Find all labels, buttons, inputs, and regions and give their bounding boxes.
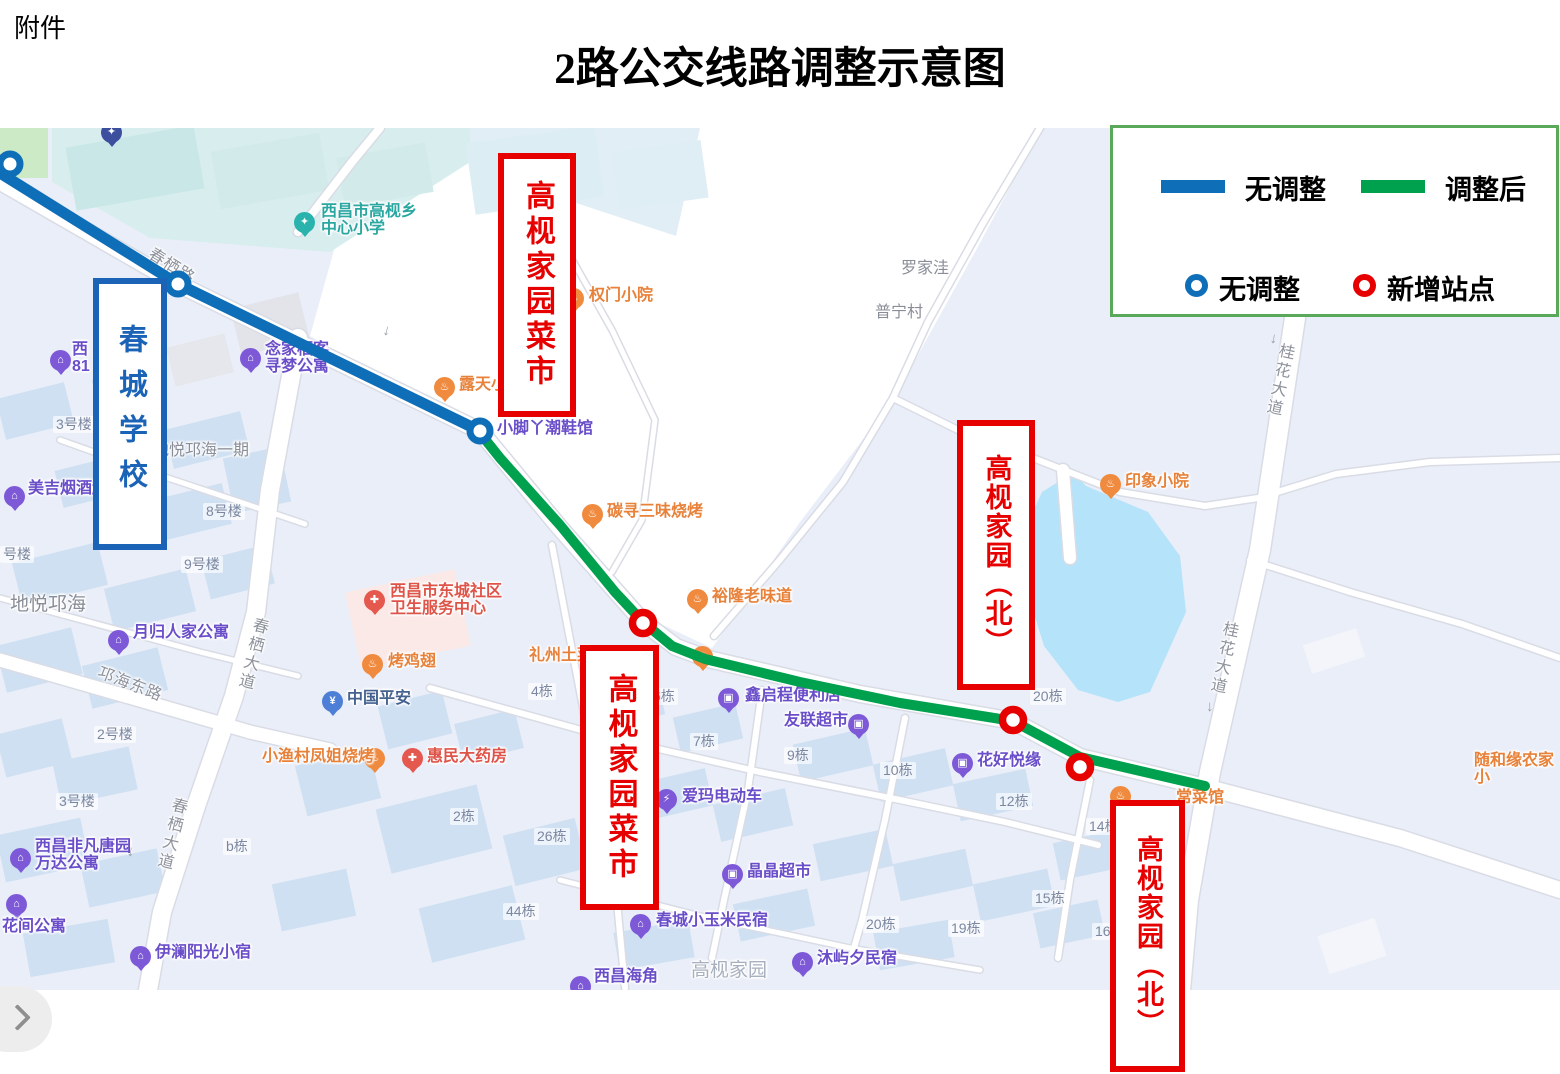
legend-station-red-icon	[1353, 274, 1376, 297]
school-annotation-box: 春城学校	[93, 278, 167, 550]
page-title: 2路公交线路调整示意图	[0, 34, 1560, 96]
school-box-label: 春城学校	[116, 324, 145, 504]
station-annotation-label: 高枧家园菜市	[522, 180, 552, 390]
station-annotation-box: 高枧家园（北）	[1110, 800, 1185, 1072]
legend-label-no-change-station: 无调整	[1219, 268, 1300, 307]
station-unchanged	[470, 421, 490, 441]
station-new	[1003, 710, 1024, 731]
legend-box: 无调整 调整后 无调整 新增站点	[1110, 125, 1559, 317]
legend-label-new-station: 新增站点	[1387, 268, 1495, 307]
legend-label-adjusted-line: 调整后	[1445, 168, 1526, 207]
station-unchanged	[0, 154, 20, 174]
station-annotation-label: 高枧家园（北）	[1134, 835, 1161, 1038]
chevron-right-icon	[4, 1004, 31, 1031]
legend-line-green	[1361, 180, 1425, 193]
legend-label-no-change-line: 无调整	[1245, 168, 1326, 207]
station-annotation-box: 高枧家园（北）	[957, 420, 1035, 690]
carousel-next-button[interactable]	[0, 986, 52, 1052]
legend-station-blue-icon	[1185, 274, 1208, 297]
station-annotation-label: 高枧家园菜市	[605, 673, 635, 883]
station-unchanged	[168, 274, 188, 294]
station-new	[1070, 757, 1091, 778]
station-annotation-box: 高枧家园菜市	[498, 153, 576, 417]
station-annotation-box: 高枧家园菜市	[580, 645, 659, 910]
legend-line-blue	[1161, 180, 1225, 193]
station-annotation-label: 高枧家园（北）	[983, 454, 1010, 657]
station-new	[633, 613, 654, 634]
route-unchanged-blue	[0, 168, 480, 431]
